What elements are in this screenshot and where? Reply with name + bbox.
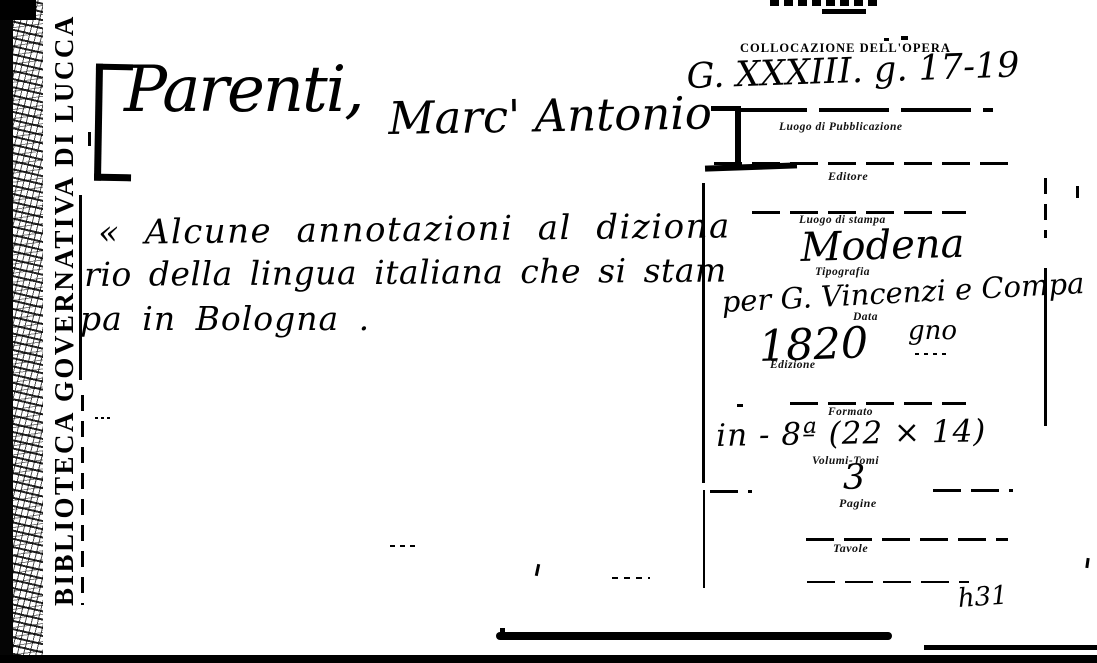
volumi-value: 3	[843, 461, 865, 496]
title-line-2: rio della lingua italiana che si stam	[84, 254, 727, 291]
bottom-border-line	[0, 655, 1097, 663]
right-dashed-line	[1044, 268, 1047, 426]
rule-editore	[714, 162, 1012, 165]
author-surname: Parenti,	[124, 58, 363, 122]
editore-label: Editore	[828, 170, 868, 182]
close-bracket	[735, 106, 741, 168]
noise-mark	[535, 564, 540, 576]
top-edge-bar	[822, 9, 866, 14]
bottom-right-line	[924, 645, 1097, 650]
luogo-stampa-value: Modena	[800, 224, 965, 268]
noise-mark	[1076, 186, 1079, 198]
scan-corner-blob	[0, 0, 36, 20]
rule-collocazione	[737, 108, 993, 112]
rule-pagine-right	[933, 489, 1013, 492]
edizione-label: Edizione	[770, 360, 816, 372]
collocazione-value: G. XXXIII. g. 17-19	[686, 48, 1020, 95]
right-dashed-line-upper	[1044, 178, 1047, 238]
noise-mark	[390, 545, 420, 547]
noise-mark	[612, 577, 650, 579]
noise-mark	[884, 38, 889, 41]
scan-edge-black-strip	[0, 0, 13, 663]
noise-mark	[737, 404, 743, 407]
noise-mark	[95, 417, 111, 419]
noise-mark	[500, 628, 505, 632]
tipografia-value-line1: per G. Vincenzi e Compa	[721, 269, 1085, 317]
library-stamp: BIBLIOTECA GOVERNATIVA DI LUCCA	[50, 54, 80, 606]
rule-bottom-code	[807, 581, 969, 583]
card-margin-line-lower	[81, 395, 84, 605]
card-margin-line	[79, 195, 82, 380]
noise-mark	[88, 132, 91, 146]
bottom-code: h31	[957, 583, 1009, 612]
center-divider-line-lower	[703, 490, 705, 588]
noise-dotted-mark	[915, 353, 949, 355]
scan-edge-speckle-strip	[13, 0, 43, 663]
luogo-pubblicazione-label: Luogo di Pubblicazione	[779, 122, 902, 134]
title-line-3: pa in Bologna .	[80, 302, 370, 335]
formato-value: in - 8ª (22 × 14)	[716, 416, 987, 452]
noise-mark	[1085, 558, 1089, 568]
tipografia-value-line2: gno	[908, 318, 957, 344]
rule-formato	[790, 402, 966, 405]
author-forename: Marc' Antonio	[388, 90, 712, 141]
catalog-card: BIBLIOTECA GOVERNATIVA DI LUCCA Parenti,…	[0, 0, 1097, 663]
noise-mark	[901, 36, 908, 40]
center-divider-line	[702, 183, 705, 483]
title-line-1: « Alcune annotazioni al diziona	[98, 209, 731, 250]
top-edge-fragment	[770, 0, 878, 6]
tavole-label: Tavole	[833, 542, 868, 554]
pagine-label: Pagine	[839, 497, 877, 509]
bottom-thick-line	[496, 632, 892, 640]
rule-pagine-left	[710, 490, 752, 493]
